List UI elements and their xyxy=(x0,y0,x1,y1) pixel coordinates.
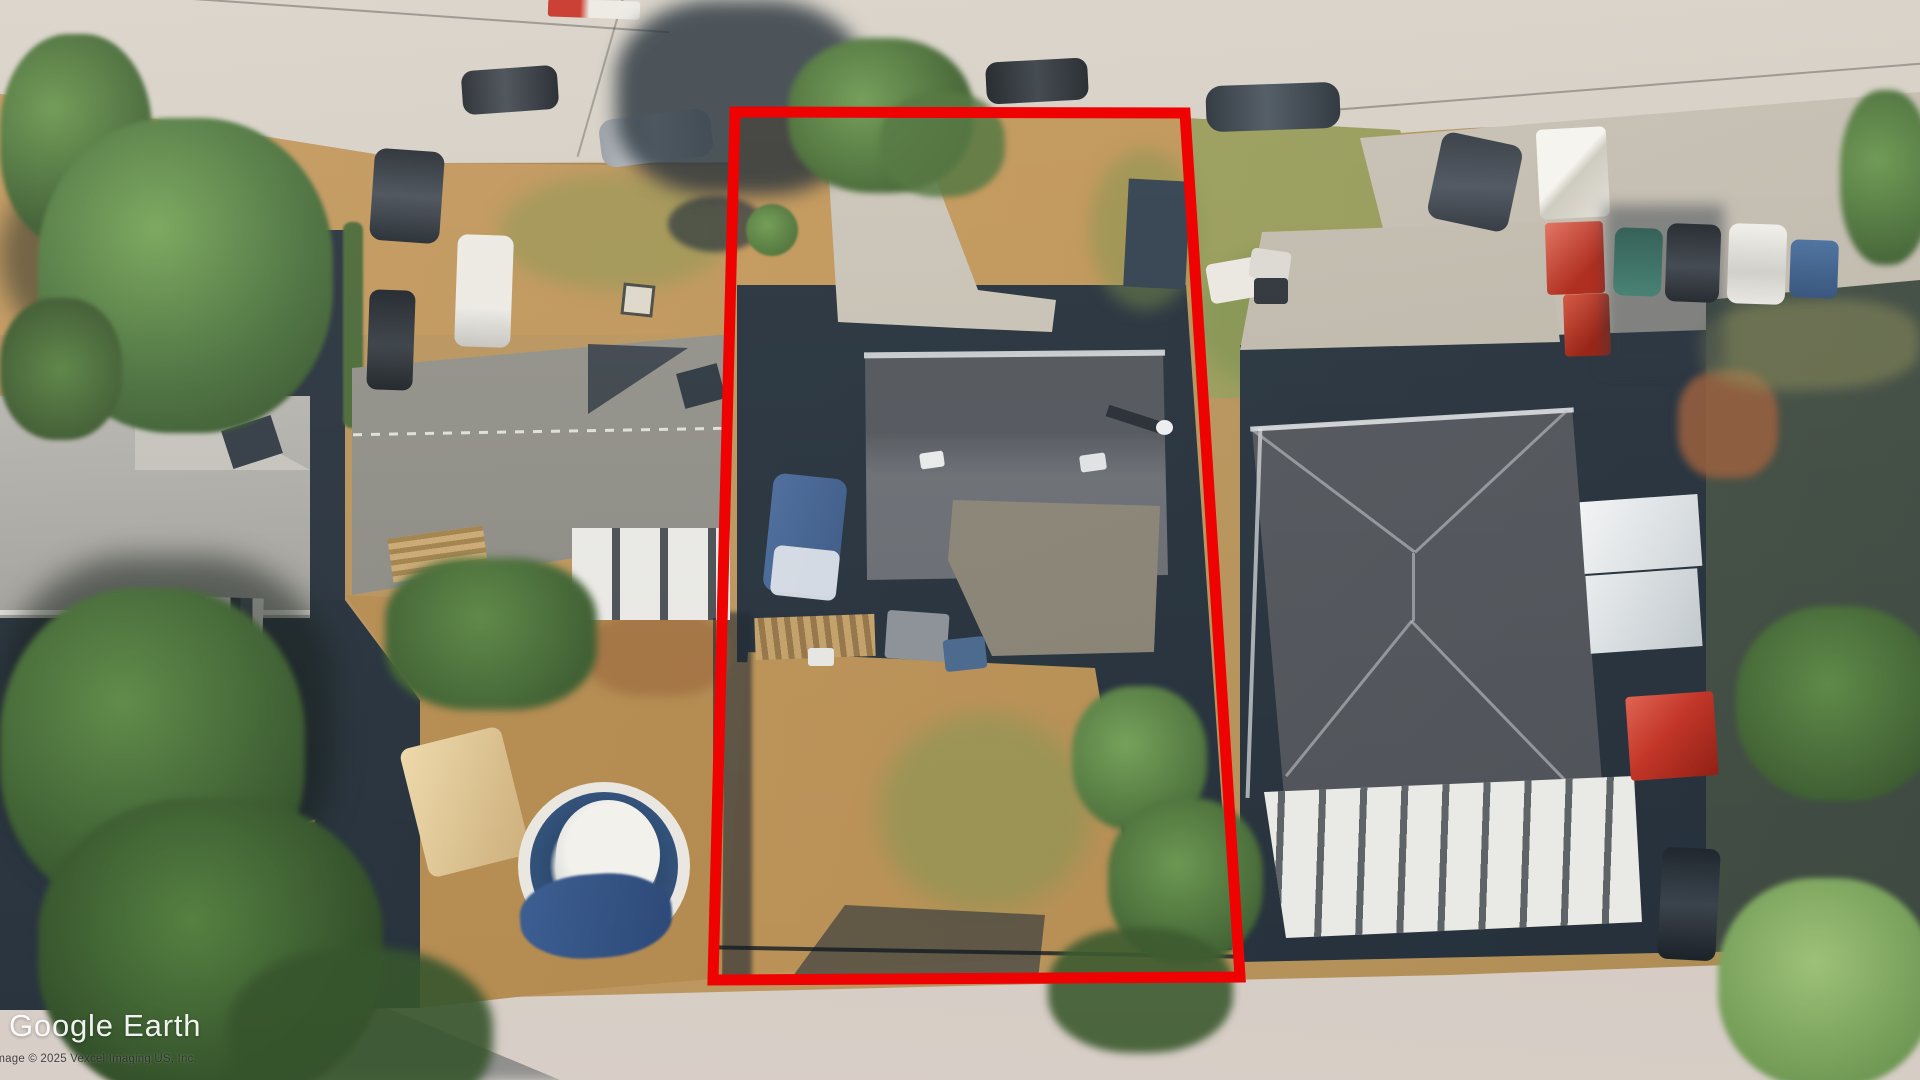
copyright-attribution: Image © 2025 Vexcel Imaging US, Inc. xyxy=(0,1053,197,1065)
google-earth-logo: Google Earth xyxy=(9,1008,201,1044)
atmosphere-haze xyxy=(0,0,1920,1080)
satellite-imagery xyxy=(0,0,1920,1080)
google-earth-aerial-view: Google Earth Image © 2025 Vexcel Imaging… xyxy=(0,0,1920,1080)
